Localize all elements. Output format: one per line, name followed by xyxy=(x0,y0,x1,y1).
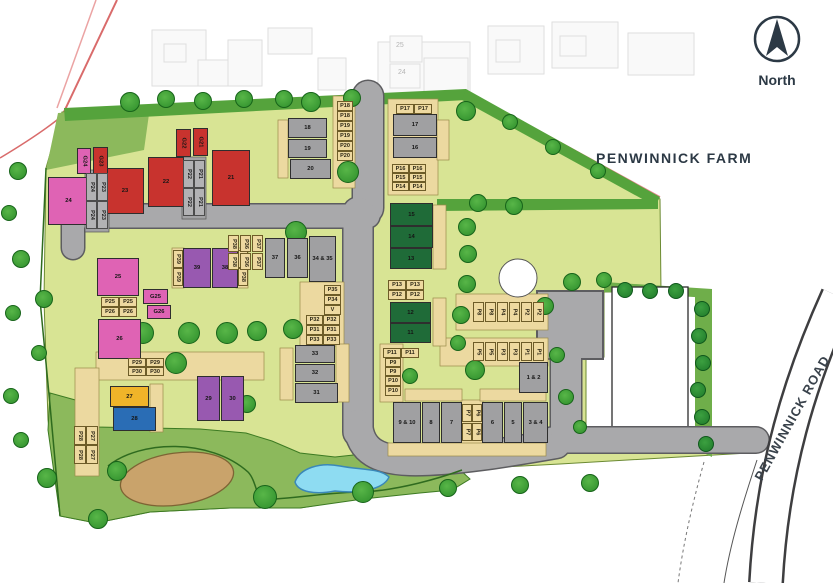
parking-space-text: P37 xyxy=(255,239,261,249)
building-plot: G22 xyxy=(176,129,191,157)
tree-icon xyxy=(337,161,359,183)
parking-space-text: P18 xyxy=(340,113,350,119)
tree-icon xyxy=(573,420,587,434)
parking-space-label: P26 xyxy=(101,307,119,317)
building-plot: 5 xyxy=(504,402,522,443)
building-plot: 21 xyxy=(212,150,250,206)
parking-space-text: P3 xyxy=(499,348,505,355)
parking-space-label: P1 xyxy=(533,342,544,361)
parking-space-text: P36 xyxy=(243,239,249,249)
tree-icon xyxy=(458,218,476,236)
tree-icon xyxy=(469,194,487,212)
bush-icon xyxy=(691,328,707,344)
building-plot: 36 xyxy=(287,238,308,278)
parking-space-text: P23 xyxy=(100,182,106,192)
parking-space-text: P7 xyxy=(464,410,470,417)
building-plot: 37 xyxy=(265,238,285,278)
parking-space-label: P32 xyxy=(306,315,323,325)
parking-space-label: P6 xyxy=(472,423,482,441)
parking-space-label: P9 xyxy=(385,367,401,376)
parking-space-text: P1 xyxy=(523,348,529,355)
parking-space-text: P28 xyxy=(77,450,83,460)
building-plot: 16 xyxy=(393,137,437,158)
parking-space-text: P10 xyxy=(388,388,398,394)
building-plot-label: 26 xyxy=(116,336,122,342)
parking-space-text: P13 xyxy=(410,282,420,288)
parking-space-label: P28 xyxy=(74,445,86,464)
building-plot-label: 16 xyxy=(412,145,418,151)
parking-space-label: P4 xyxy=(497,302,508,322)
parking-space-text: P38 xyxy=(231,257,237,267)
building-plot-label: 20 xyxy=(307,166,313,172)
parking-space-label: P24 xyxy=(86,173,97,201)
parking-space-label: P1 xyxy=(521,342,532,361)
parking-space-text: P11 xyxy=(405,350,414,356)
parking-space-label: P29 xyxy=(146,358,164,367)
paddock-field xyxy=(612,287,688,437)
building-plot-label: 34 & 35 xyxy=(312,256,332,262)
parking-space-text: P9 xyxy=(390,360,397,366)
existing-tree-outline xyxy=(499,259,537,297)
parking-space-text: P39 xyxy=(175,254,181,264)
parking-space-label: P23 xyxy=(97,201,108,229)
parking-space-text: P25 xyxy=(123,299,133,305)
parking-space-text: P3 xyxy=(511,348,517,355)
parking-space-text: P37 xyxy=(255,257,261,267)
parking-space-label: P7 xyxy=(462,404,472,422)
parking-space-label: P24 xyxy=(86,201,97,229)
parking-space-label: P8 xyxy=(485,302,496,322)
parking-space-label: P11 xyxy=(401,348,419,358)
north-label: North xyxy=(742,72,812,88)
tree-icon xyxy=(1,205,17,221)
parking-space-text: P14 xyxy=(396,184,406,190)
building-plot: 24 xyxy=(48,177,89,225)
building-plot-label: 32 xyxy=(312,370,318,376)
parking-space-text: V xyxy=(331,307,335,313)
parking-space-label: P26 xyxy=(119,307,137,317)
building-plot: G24 xyxy=(77,148,91,174)
parking-space-label: P33 xyxy=(323,335,340,345)
parking-space-label: P31 xyxy=(306,325,323,335)
building-plot-label: 29 xyxy=(205,396,211,402)
parking-space-label: P3 xyxy=(509,342,520,361)
building-plot-label: 7 xyxy=(450,420,453,426)
building-plot-label: 1 & 2 xyxy=(527,375,541,381)
parking-space-label: P9 xyxy=(385,358,401,367)
tree-icon xyxy=(12,250,30,268)
parking-space-label: P10 xyxy=(385,386,401,396)
parking-space-text: P18 xyxy=(340,103,350,109)
parking-space-label: P34 xyxy=(324,295,341,305)
bush-icon xyxy=(668,283,684,299)
building-plot: 8 xyxy=(422,402,440,443)
building-plot: 17 xyxy=(393,114,437,136)
parking-space-text: P4 xyxy=(499,309,505,316)
parking-space-text: P38 xyxy=(240,272,246,282)
tree-icon xyxy=(502,114,518,130)
tree-icon xyxy=(37,468,57,488)
parking-space-label: P32 xyxy=(323,315,340,325)
site-plan: North PENWINNICK FARM PENWINNICK ROAD 25… xyxy=(0,0,833,583)
building-plot: 7 xyxy=(441,402,462,443)
parking-space-text: P6 xyxy=(474,410,480,417)
parking-space-text: P33 xyxy=(310,337,320,343)
building-plot-label: 15 xyxy=(408,212,414,218)
parking-space-text: P15 xyxy=(396,175,406,181)
building-plot-label: 13 xyxy=(408,256,414,262)
parking-space-text: P29 xyxy=(132,360,142,366)
building-plot-label: 24 xyxy=(65,198,71,204)
building-plot-label: 33 xyxy=(312,351,318,357)
building-plot-label: 14 xyxy=(408,234,414,240)
tree-icon xyxy=(275,90,293,108)
parking-space-label: P5 xyxy=(473,342,484,361)
parking-space-text: P24 xyxy=(89,210,95,220)
building-plot-label: 9 & 10 xyxy=(398,420,415,426)
building-plot: 6 xyxy=(482,402,503,443)
tree-icon xyxy=(549,347,565,363)
building-plot-label: 21 xyxy=(228,175,234,181)
parking-space-text: P11 xyxy=(387,350,396,356)
parking-space-label: V xyxy=(324,305,341,315)
parking-space-label: P18 xyxy=(337,101,353,111)
parking-space-text: P22 xyxy=(186,169,192,179)
parking-space-label: P5 xyxy=(485,342,496,361)
building-plot-label: 37 xyxy=(272,255,278,261)
parking-space-label: P22 xyxy=(183,160,194,188)
bush-icon xyxy=(617,282,633,298)
building-plot: 28 xyxy=(113,407,156,431)
parking-space-label: P29 xyxy=(128,358,146,367)
building-plot: 25 xyxy=(97,258,139,296)
parking-space-label: P35 xyxy=(324,285,341,295)
parking-space-text: P39 xyxy=(175,272,181,282)
tree-icon xyxy=(9,162,27,180)
parking-space-text: P31 xyxy=(327,327,337,333)
building-plot: 27 xyxy=(110,386,149,407)
building-plot: 18 xyxy=(288,118,327,138)
parking-space-label: P16 xyxy=(392,164,409,173)
parking-space-label: P20 xyxy=(337,151,353,161)
building-plot-label: 23 xyxy=(122,188,128,194)
parking-space-text: P15 xyxy=(413,175,423,181)
parking-space-label: P3 xyxy=(497,342,508,361)
parking-space-text: P20 xyxy=(340,153,350,159)
parking-space-text: P31 xyxy=(310,327,320,333)
parking-space-label: P38 xyxy=(228,235,239,252)
tree-icon xyxy=(178,322,200,344)
building-plot-label: 25 xyxy=(115,274,121,280)
parking-space-text: P22 xyxy=(186,197,192,207)
building-plot: 33 xyxy=(295,345,335,363)
parking-space-text: P26 xyxy=(123,309,133,315)
parking-space-label: P25 xyxy=(101,297,119,307)
parking-space-text: P32 xyxy=(310,317,320,323)
tree-icon xyxy=(458,275,476,293)
parking-space-text: P2 xyxy=(523,309,529,316)
parking-space-text: P34 xyxy=(328,297,338,303)
building-plot: 30 xyxy=(221,376,244,421)
building-plot-label: G25 xyxy=(150,294,161,300)
parking-space-text: P9 xyxy=(390,369,397,375)
building-plot-label: 31 xyxy=(313,390,319,396)
parking-space-label: P19 xyxy=(337,131,353,141)
building-plot: 14 xyxy=(390,226,433,248)
tree-icon xyxy=(165,352,187,374)
tree-icon xyxy=(450,335,466,351)
faded-plot-number: 24 xyxy=(398,69,406,76)
bush-icon xyxy=(642,283,658,299)
building-plot-label: 17 xyxy=(412,122,418,128)
building-plot: 26 xyxy=(98,319,141,359)
parking-space-label: P27 xyxy=(86,426,98,445)
parking-space-text: P17 xyxy=(400,106,410,112)
tree-icon xyxy=(283,319,303,339)
parking-space-label: P8 xyxy=(473,302,484,322)
parking-space-text: P21 xyxy=(197,197,203,207)
parking-space-label: P39 xyxy=(173,250,183,268)
tree-icon xyxy=(596,272,612,288)
building-plot-label: 19 xyxy=(304,146,310,152)
north-indicator: North xyxy=(742,14,812,88)
parking-space-label: P30 xyxy=(128,367,146,376)
tree-icon xyxy=(120,92,140,112)
parking-space-text: P23 xyxy=(100,210,106,220)
parking-space-text: P38 xyxy=(231,239,237,249)
parking-space-label: P16 xyxy=(409,164,426,173)
building-plot: G25 xyxy=(143,289,168,304)
tree-icon xyxy=(13,432,29,448)
tree-icon xyxy=(558,389,574,405)
building-plot-label: 39 xyxy=(194,265,200,271)
tree-icon xyxy=(247,321,267,341)
parking-space-text: P26 xyxy=(105,309,115,315)
tree-icon xyxy=(465,360,485,380)
building-plot-label: G24 xyxy=(81,156,87,167)
building-plot: 11 xyxy=(390,323,431,343)
building-plot-label: G26 xyxy=(154,309,165,315)
parking-space-text: P27 xyxy=(89,431,95,441)
parking-space-label: P12 xyxy=(388,290,406,300)
building-plot: 32 xyxy=(295,364,335,382)
parking-space-text: P16 xyxy=(396,166,406,172)
north-arrow-icon xyxy=(747,14,807,66)
parking-space-label: P38 xyxy=(238,268,248,286)
parking-space-label: P10 xyxy=(385,376,401,386)
parking-space-text: P16 xyxy=(413,166,423,172)
tree-icon xyxy=(452,306,470,324)
parking-space-label: P7 xyxy=(462,423,472,441)
parking-space-text: P28 xyxy=(77,431,83,441)
parking-space-text: P12 xyxy=(392,292,402,298)
parking-space-label: P2 xyxy=(533,302,544,322)
building-plot-label: G21 xyxy=(198,137,204,148)
building-plot-label: 3 & 4 xyxy=(529,420,543,426)
building-plot: G23 xyxy=(93,147,108,174)
tree-icon xyxy=(352,481,374,503)
parking-space-label: P25 xyxy=(119,297,137,307)
tree-icon xyxy=(107,461,127,481)
building-plot: 13 xyxy=(390,248,432,269)
parking-space-label: P36 xyxy=(240,253,251,270)
bush-icon xyxy=(694,301,710,317)
parking-space-label: P17 xyxy=(396,104,414,114)
parking-space-label: P14 xyxy=(392,182,409,191)
tree-icon xyxy=(31,345,47,361)
parking-space-text: P20 xyxy=(340,143,350,149)
building-plot-label: G22 xyxy=(181,138,187,149)
building-plot-label: 30 xyxy=(229,396,235,402)
building-plot: G21 xyxy=(193,128,208,156)
building-plot-label: 36 xyxy=(294,255,300,261)
parking-space-label: P31 xyxy=(323,325,340,335)
parking-space-text: P2 xyxy=(535,309,541,316)
parking-space-text: P35 xyxy=(328,287,338,293)
parking-space-text: P5 xyxy=(475,348,481,355)
parking-space-text: P30 xyxy=(132,369,142,375)
tree-icon xyxy=(563,273,581,291)
building-plot-label: G23 xyxy=(98,155,104,166)
parking-space-label: P19 xyxy=(337,121,353,131)
parking-space-text: P7 xyxy=(464,429,470,436)
tree-icon xyxy=(3,388,19,404)
building-plot: G26 xyxy=(147,305,171,319)
farm-name-label: PENWINNICK FARM xyxy=(596,150,752,166)
parking-space-label: P2 xyxy=(521,302,532,322)
building-plot-label: 5 xyxy=(511,420,514,426)
parking-space-label: P15 xyxy=(409,173,426,182)
building-plot-label: 28 xyxy=(131,416,137,422)
parking-space-text: P8 xyxy=(487,309,493,316)
building-plot-label: 8 xyxy=(429,420,432,426)
parking-space-label: P36 xyxy=(240,235,251,252)
tree-icon xyxy=(157,90,175,108)
building-plot: 19 xyxy=(288,139,327,158)
building-plot-label: 27 xyxy=(126,394,132,400)
bush-icon xyxy=(690,382,706,398)
tree-icon xyxy=(35,290,53,308)
parking-space-text: P21 xyxy=(197,169,203,179)
parking-space-text: P30 xyxy=(150,369,160,375)
parking-space-label: P15 xyxy=(392,173,409,182)
parking-space-text: P19 xyxy=(340,123,350,129)
tree-icon xyxy=(301,92,321,112)
tree-icon xyxy=(459,245,477,263)
parking-space-label: P17 xyxy=(414,104,432,114)
parking-space-text: P5 xyxy=(487,348,493,355)
parking-space-label: P33 xyxy=(306,335,323,345)
parking-space-text: P14 xyxy=(413,184,423,190)
parking-space-label: P37 xyxy=(252,253,263,270)
tree-icon xyxy=(235,90,253,108)
parking-space-text: P10 xyxy=(388,378,398,384)
parking-space-label: P13 xyxy=(406,280,424,290)
tree-icon xyxy=(505,197,523,215)
tree-icon xyxy=(545,139,561,155)
parking-space-text: P4 xyxy=(511,309,517,316)
building-plot-label: 6 xyxy=(491,420,494,426)
parking-space-text: P19 xyxy=(340,133,350,139)
parking-space-label: P21 xyxy=(194,160,205,188)
parking-space-text: P13 xyxy=(392,282,402,288)
building-plot: 3 & 4 xyxy=(523,402,548,443)
parking-space-label: P12 xyxy=(406,290,424,300)
existing-buildings-faded xyxy=(152,22,694,94)
tree-icon xyxy=(581,474,599,492)
parking-space-text: P27 xyxy=(89,450,95,460)
building-plot: 39 xyxy=(183,248,211,288)
parking-space-text: P6 xyxy=(474,429,480,436)
building-plot-label: 12 xyxy=(407,310,413,316)
bush-icon xyxy=(698,436,714,452)
building-plot-label: 18 xyxy=(304,125,310,131)
parking-space-label: P39 xyxy=(173,268,183,286)
parking-space-label: P11 xyxy=(383,348,401,358)
tree-icon xyxy=(5,305,21,321)
building-plot: 29 xyxy=(197,376,220,421)
parking-space-label: P23 xyxy=(97,173,108,201)
parking-space-text: P32 xyxy=(327,317,337,323)
building-plot-label: 11 xyxy=(407,330,413,336)
bush-icon xyxy=(694,409,710,425)
tree-icon xyxy=(511,476,529,494)
tree-icon xyxy=(402,368,418,384)
building-plot: 31 xyxy=(295,383,338,403)
building-plot: 34 & 35 xyxy=(309,236,336,282)
faded-plot-number: 25 xyxy=(396,42,404,49)
building-plot-label: 22 xyxy=(163,179,169,185)
building-plot: 15 xyxy=(390,203,433,226)
parking-space-text: P17 xyxy=(418,106,428,112)
parking-space-label: P6 xyxy=(472,404,482,422)
parking-space-text: P24 xyxy=(89,182,95,192)
parking-space-text: P33 xyxy=(327,337,337,343)
bush-icon xyxy=(695,355,711,371)
parking-space-label: P14 xyxy=(409,182,426,191)
parking-space-label: P30 xyxy=(146,367,164,376)
tree-icon xyxy=(88,509,108,529)
building-plot: 23 xyxy=(106,168,144,214)
parking-space-label: P4 xyxy=(509,302,520,322)
parking-space-label: P20 xyxy=(337,141,353,151)
parking-space-label: P22 xyxy=(183,188,194,216)
parking-space-text: P25 xyxy=(105,299,115,305)
tree-icon xyxy=(253,485,277,509)
parking-space-label: P18 xyxy=(337,111,353,121)
parking-space-text: P1 xyxy=(535,348,541,355)
building-plot: 20 xyxy=(290,159,331,179)
parking-space-label: P38 xyxy=(228,253,239,270)
parking-space-label: P27 xyxy=(86,445,98,464)
building-plot: 22 xyxy=(148,157,184,207)
building-plot: 9 & 10 xyxy=(393,402,421,443)
parking-space-text: P29 xyxy=(150,360,160,366)
tree-icon xyxy=(216,322,238,344)
parking-space-text: P36 xyxy=(243,257,249,267)
building-plot: 1 & 2 xyxy=(519,362,548,393)
parking-space-label: P21 xyxy=(194,188,205,216)
tree-icon xyxy=(194,92,212,110)
parking-space-label: P13 xyxy=(388,280,406,290)
parking-space-text: P12 xyxy=(410,292,420,298)
parking-space-label: P28 xyxy=(74,426,86,445)
tree-icon xyxy=(439,479,457,497)
parking-space-label: P37 xyxy=(252,235,263,252)
tree-icon xyxy=(456,101,476,121)
parking-space-text: P8 xyxy=(475,309,481,316)
building-plot: 12 xyxy=(390,302,431,323)
